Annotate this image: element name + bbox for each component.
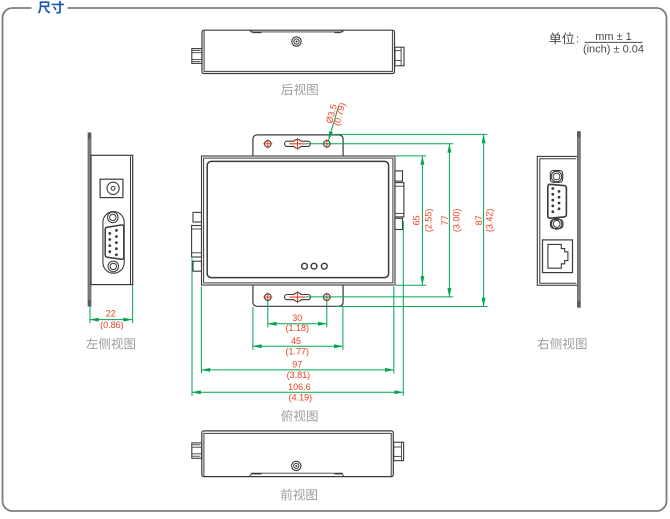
svg-text:(4.19): (4.19) [289, 392, 313, 402]
svg-text:(3.00): (3.00) [452, 209, 462, 233]
svg-text:(1.77): (1.77) [286, 346, 310, 356]
svg-text:mm ± 1: mm ± 1 [595, 31, 632, 43]
svg-text:(1.18): (1.18) [286, 323, 310, 333]
svg-text:(0.86): (0.86) [100, 320, 124, 330]
svg-text:(3.42): (3.42) [485, 209, 495, 233]
svg-text:97: 97 [292, 359, 302, 369]
svg-text::: : [576, 34, 579, 46]
svg-text:77: 77 [440, 215, 450, 225]
svg-text:(2.55): (2.55) [424, 209, 434, 233]
svg-text:(inch) ± 0.04: (inch) ± 0.04 [583, 44, 644, 56]
svg-text:65: 65 [411, 215, 421, 225]
svg-text:106.6: 106.6 [288, 382, 311, 392]
svg-text:(3.81): (3.81) [287, 370, 311, 380]
svg-text:45: 45 [291, 336, 301, 346]
svg-text:30: 30 [292, 313, 302, 323]
svg-text:87: 87 [474, 215, 484, 225]
svg-text:22: 22 [106, 309, 116, 319]
